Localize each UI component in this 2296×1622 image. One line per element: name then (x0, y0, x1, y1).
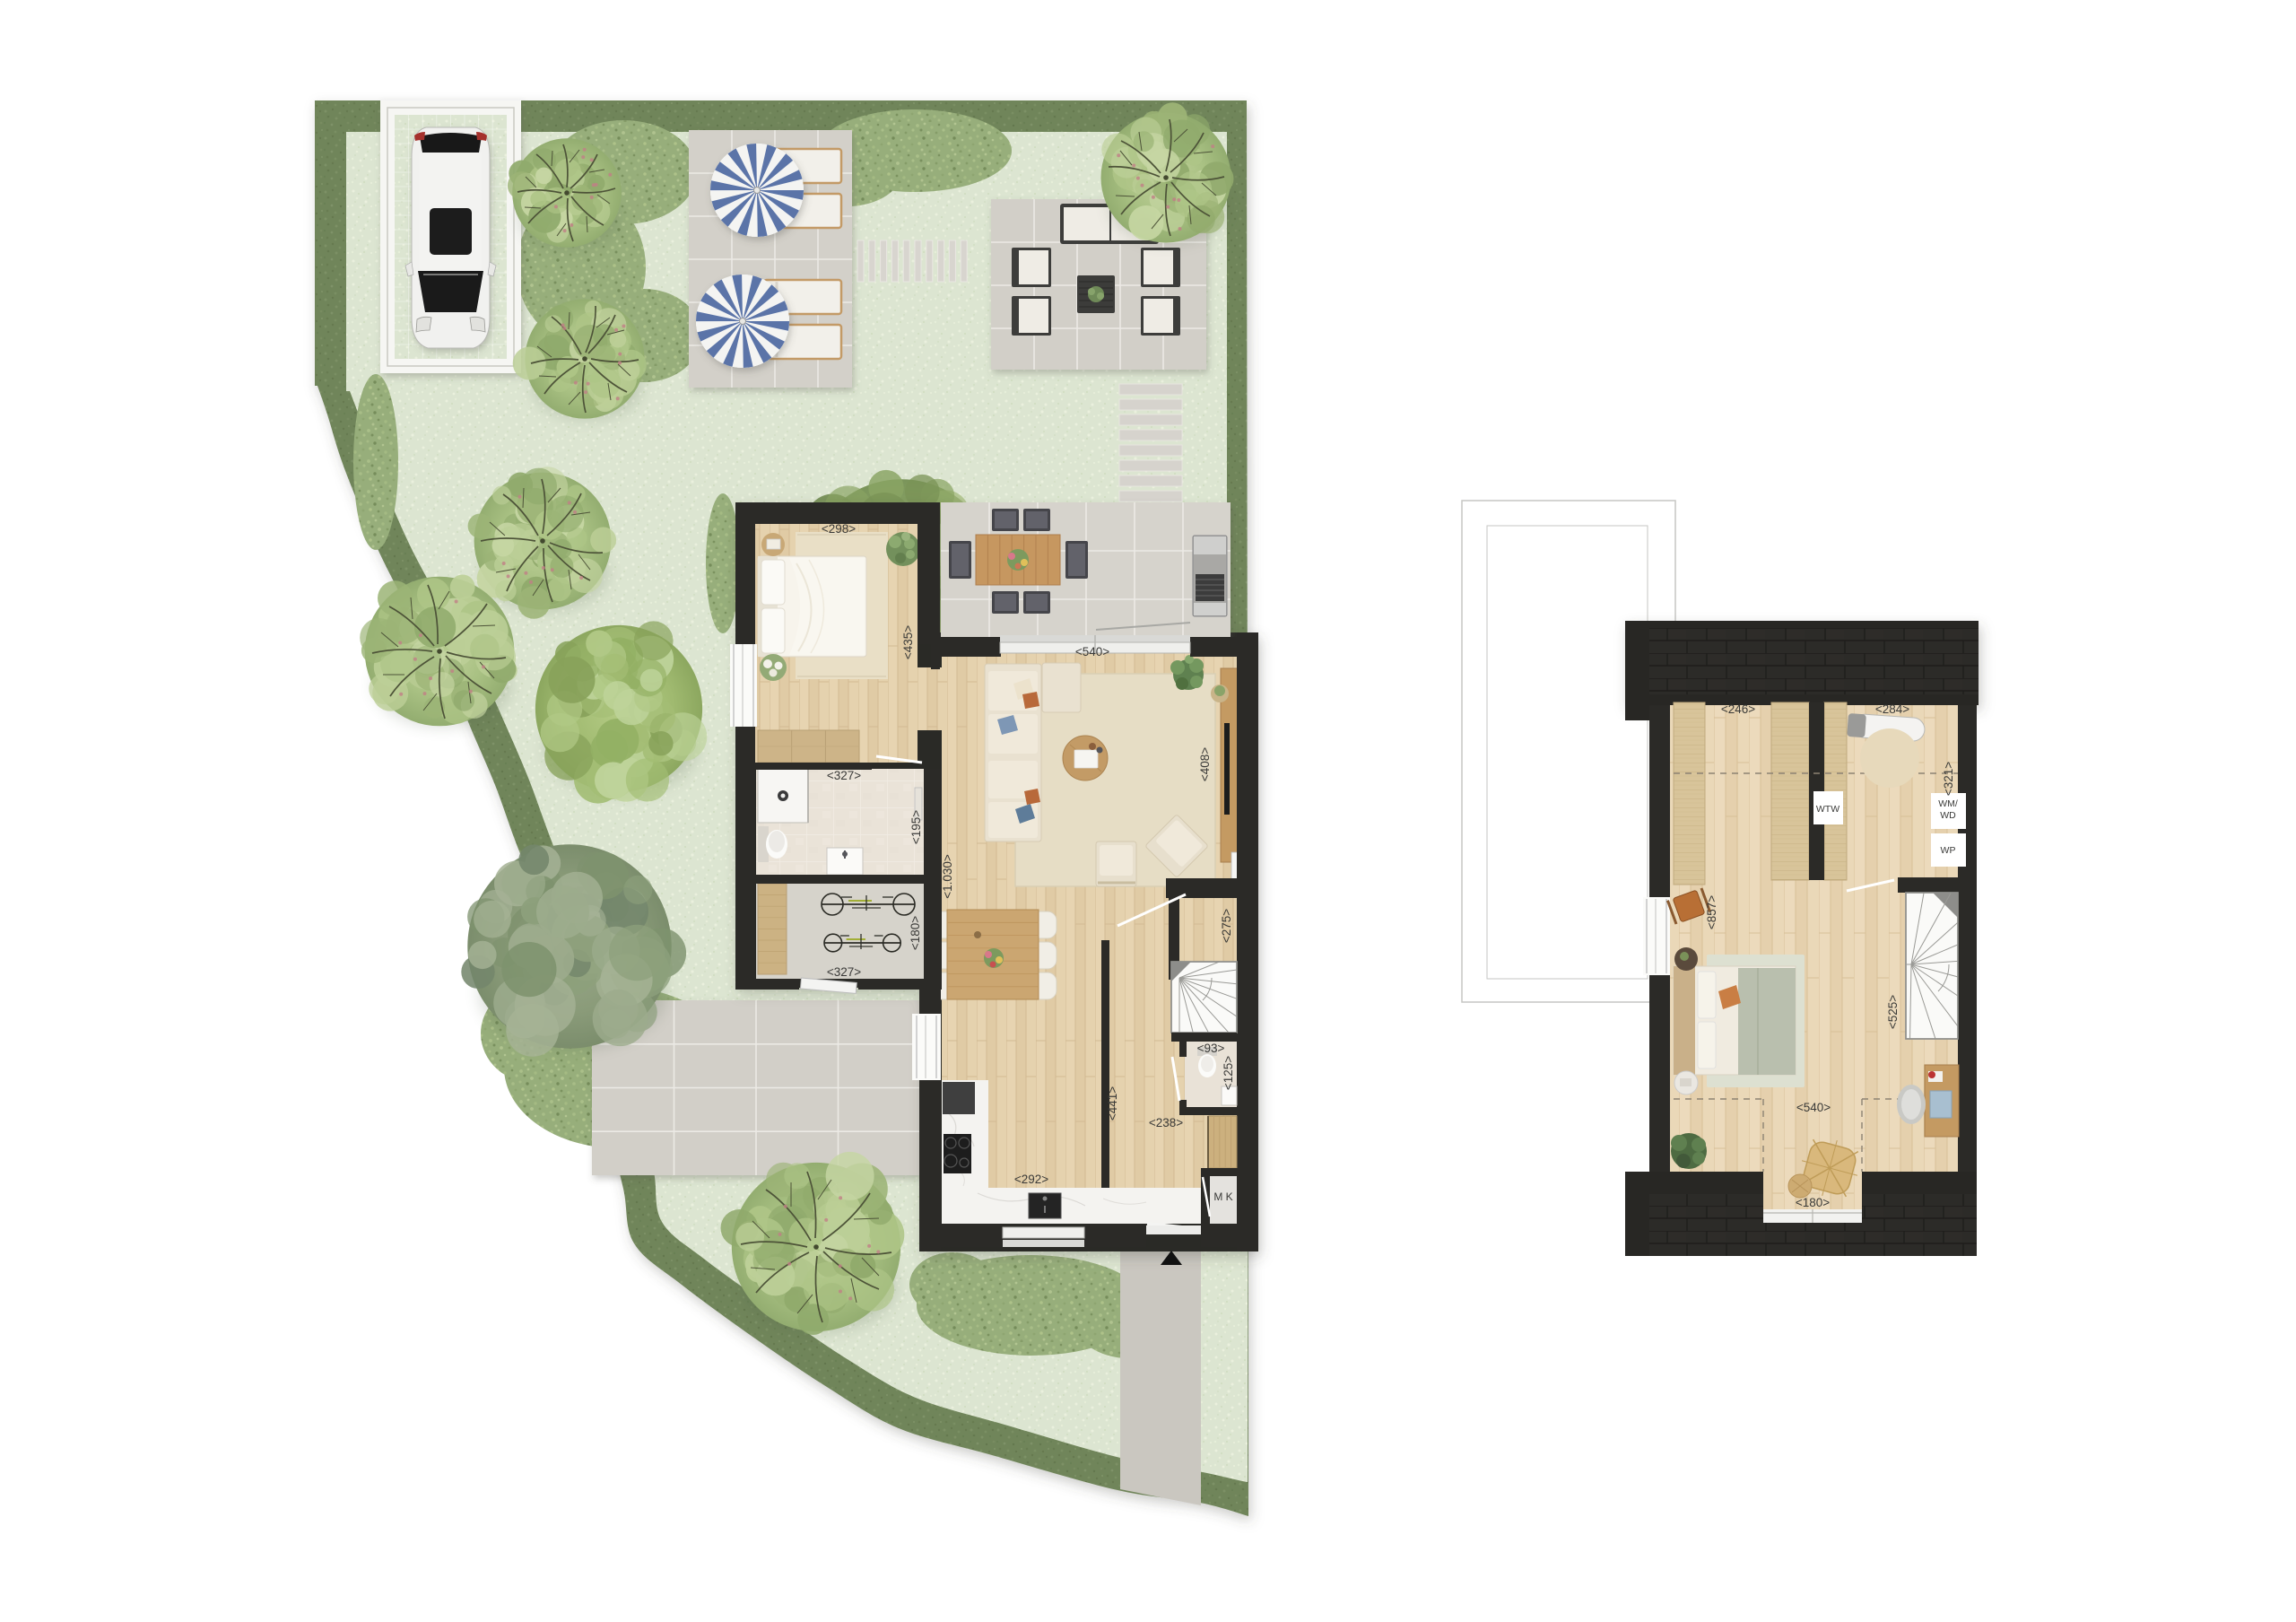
svg-text:<1.030>: <1.030> (941, 854, 954, 899)
svg-text:<321>: <321> (1942, 762, 1955, 796)
svg-text:<180>: <180> (909, 916, 922, 950)
svg-text:<284>: <284> (1875, 702, 1909, 716)
svg-text:<408>: <408> (1198, 747, 1212, 781)
svg-text:<525>: <525> (1886, 995, 1900, 1029)
svg-text:<540>: <540> (1796, 1101, 1831, 1114)
svg-text:<195>: <195> (909, 810, 923, 844)
svg-text:<180>: <180> (1796, 1196, 1830, 1209)
svg-text:<298>: <298> (822, 522, 856, 536)
svg-text:<327>: <327> (827, 965, 861, 979)
svg-text:WD: WD (1940, 810, 1956, 821)
svg-text:<435>: <435> (901, 625, 915, 659)
svg-text:<292>: <292> (1014, 1173, 1048, 1186)
svg-text:WM/: WM/ (1938, 798, 1958, 809)
svg-text:<540>: <540> (1075, 645, 1109, 658)
svg-text:<125>: <125> (1222, 1056, 1235, 1090)
svg-text:M K: M K (1213, 1190, 1232, 1203)
svg-text:<275>: <275> (1220, 909, 1233, 943)
svg-text:<327>: <327> (827, 769, 861, 782)
svg-text:<246>: <246> (1721, 702, 1755, 716)
svg-text:WP: WP (1941, 845, 1956, 856)
svg-text:<857>: <857> (1705, 895, 1718, 929)
svg-text:WTW: WTW (1816, 804, 1839, 815)
svg-text:<93>: <93> (1197, 1042, 1225, 1055)
svg-text:<238>: <238> (1149, 1116, 1183, 1129)
svg-text:<441>: <441> (1106, 1086, 1119, 1121)
